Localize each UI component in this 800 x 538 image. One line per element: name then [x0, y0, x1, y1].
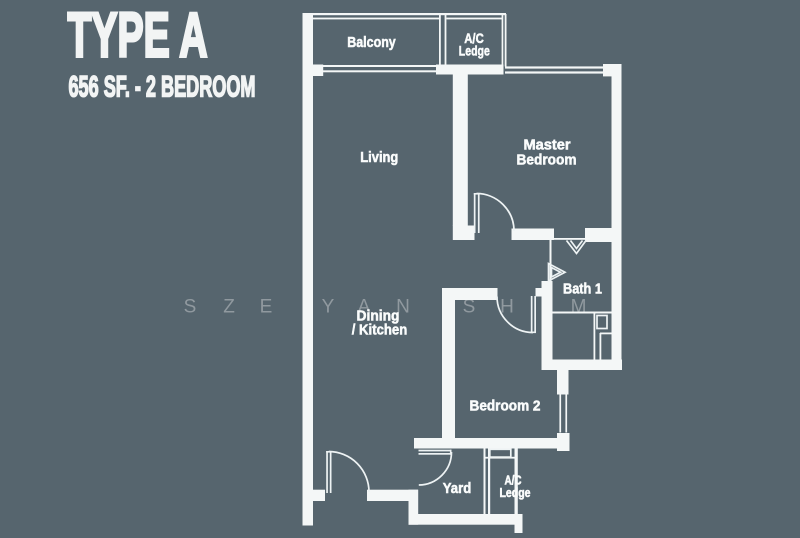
- svg-text:TYPE A: TYPE A: [68, 1, 208, 71]
- svg-text:Z: Z: [223, 297, 235, 318]
- svg-text:Y: Y: [322, 297, 335, 318]
- svg-text:Yard: Yard: [443, 480, 472, 497]
- svg-text:S: S: [184, 297, 197, 318]
- svg-text:Bedroom 2: Bedroom 2: [470, 397, 541, 414]
- svg-text:E: E: [260, 297, 273, 318]
- svg-text:Ledge: Ledge: [500, 486, 531, 500]
- svg-text:Bath 1: Bath 1: [563, 280, 602, 297]
- svg-text:Living: Living: [360, 149, 398, 166]
- svg-text:Balcony: Balcony: [347, 34, 396, 51]
- svg-text:/ Kitchen: / Kitchen: [352, 322, 408, 339]
- svg-text:Ledge: Ledge: [459, 43, 490, 59]
- svg-text:M: M: [571, 297, 587, 318]
- svg-text:Bedroom: Bedroom: [517, 152, 577, 169]
- svg-text:656 SF. - 2 BEDROOM: 656 SF. - 2 BEDROOM: [69, 71, 256, 104]
